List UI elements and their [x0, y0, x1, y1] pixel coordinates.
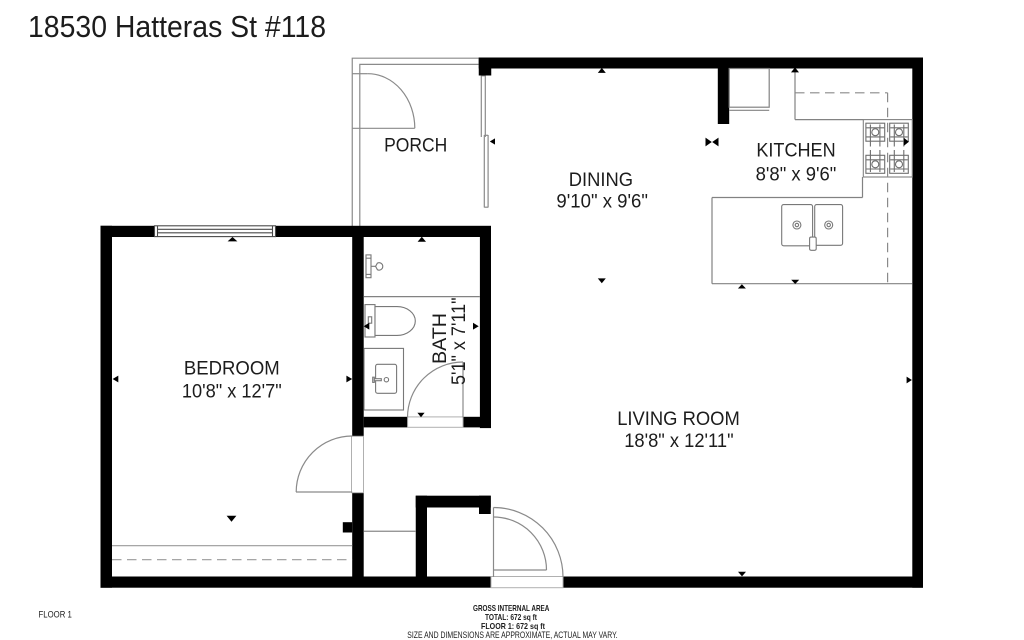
- svg-text:SIZE AND DIMENSIONS ARE APPROX: SIZE AND DIMENSIONS ARE APPROXIMATE, ACT…: [407, 630, 617, 640]
- svg-text:18'8" x 12'11": 18'8" x 12'11": [624, 431, 733, 452]
- svg-text:BATH: BATH: [430, 313, 451, 364]
- svg-text:10'8" x 12'7": 10'8" x 12'7": [182, 381, 282, 402]
- svg-text:5'1" x 7'11": 5'1" x 7'11": [449, 298, 470, 386]
- svg-text:PORCH: PORCH: [384, 135, 447, 156]
- svg-text:8'8" x 9'6": 8'8" x 9'6": [756, 165, 837, 186]
- svg-text:FLOOR 1: FLOOR 1: [39, 610, 72, 620]
- svg-text:BEDROOM: BEDROOM: [184, 359, 280, 380]
- svg-text:DINING: DINING: [569, 170, 633, 191]
- svg-text:18530 Hatteras St #118: 18530 Hatteras St #118: [28, 9, 326, 44]
- svg-text:LIVING ROOM: LIVING ROOM: [617, 409, 740, 430]
- svg-text:9'10" x 9'6": 9'10" x 9'6": [556, 191, 648, 212]
- svg-text:KITCHEN: KITCHEN: [756, 141, 835, 162]
- svg-text:GROSS INTERNAL AREA: GROSS INTERNAL AREA: [473, 604, 549, 613]
